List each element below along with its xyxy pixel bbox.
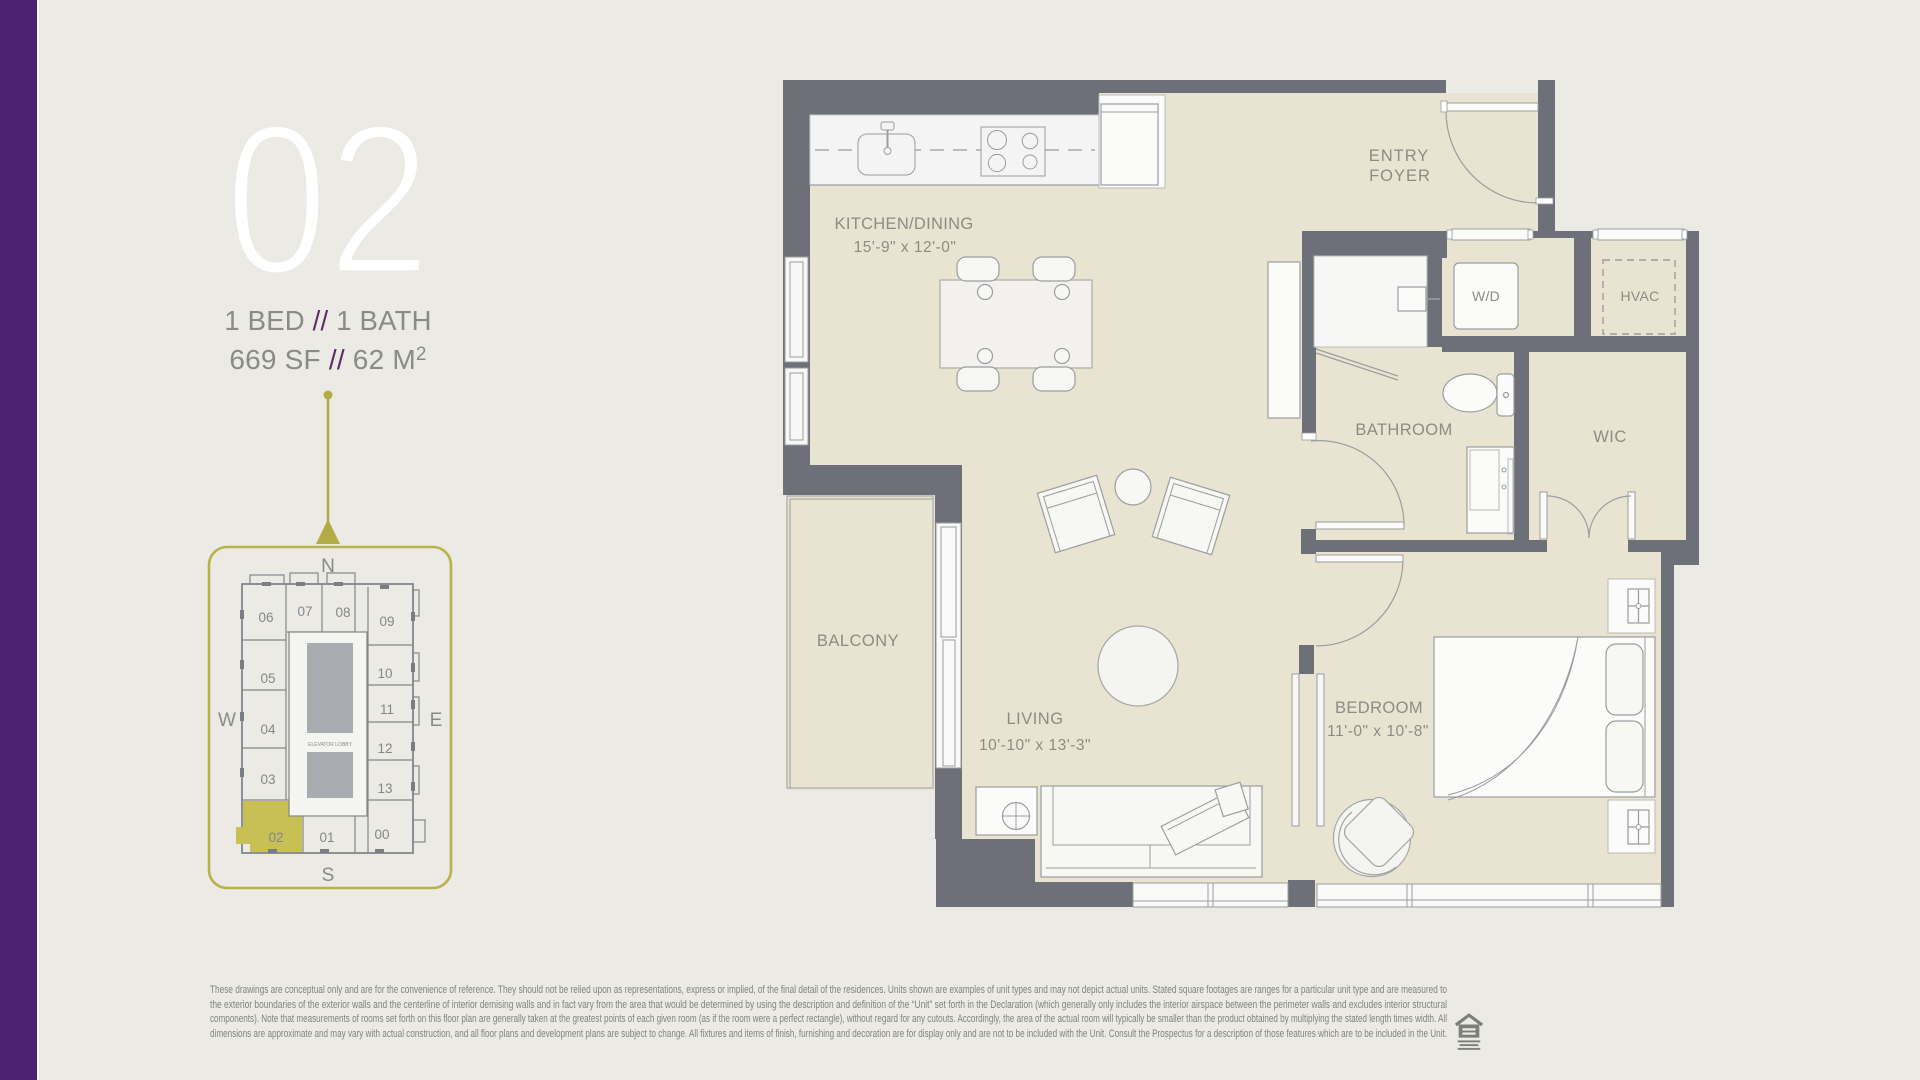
svg-text:1 BED // 1 BATH: 1 BED // 1 BATH	[224, 305, 431, 336]
svg-text:WIC: WIC	[1593, 428, 1627, 446]
svg-text:669 SF // 62 M2: 669 SF // 62 M2	[229, 344, 426, 375]
svg-text:BALCONY: BALCONY	[817, 632, 899, 650]
svg-text:W/D: W/D	[1472, 288, 1500, 304]
svg-text:12: 12	[377, 741, 392, 756]
svg-text:08: 08	[335, 605, 350, 620]
svg-text:S: S	[322, 865, 335, 886]
svg-text:KITCHEN/DINING: KITCHEN/DINING	[835, 215, 974, 233]
svg-text:HVAC: HVAC	[1620, 288, 1659, 304]
svg-text:02: 02	[226, 82, 431, 319]
svg-text:ENTRY: ENTRY	[1369, 147, 1430, 165]
svg-text:04: 04	[260, 722, 276, 737]
svg-text:10'-10" x 13'-3": 10'-10" x 13'-3"	[979, 737, 1091, 754]
svg-text:BEDROOM: BEDROOM	[1335, 699, 1423, 717]
svg-text:09: 09	[379, 614, 394, 629]
svg-text:W: W	[218, 710, 236, 731]
svg-text:15'-9" x 12'-0": 15'-9" x 12'-0"	[854, 239, 957, 256]
svg-text:N: N	[321, 556, 335, 577]
svg-text:11'-0" x 10'-8": 11'-0" x 10'-8"	[1327, 723, 1429, 740]
svg-text:05: 05	[260, 671, 275, 686]
svg-text:FOYER: FOYER	[1369, 167, 1431, 185]
svg-text:01: 01	[319, 830, 334, 845]
svg-text:00: 00	[374, 827, 389, 842]
svg-text:13: 13	[377, 781, 392, 796]
svg-text:07: 07	[297, 604, 312, 619]
svg-text:11: 11	[380, 702, 394, 717]
svg-text:06: 06	[258, 610, 273, 625]
svg-text:03: 03	[260, 772, 275, 787]
svg-text:LIVING: LIVING	[1006, 710, 1063, 728]
svg-text:10: 10	[377, 666, 392, 681]
svg-text:BATHROOM: BATHROOM	[1355, 421, 1452, 439]
svg-text:E: E	[430, 710, 443, 731]
svg-text:02: 02	[268, 830, 283, 845]
svg-text:ELEVATOR LOBBY: ELEVATOR LOBBY	[308, 742, 353, 748]
